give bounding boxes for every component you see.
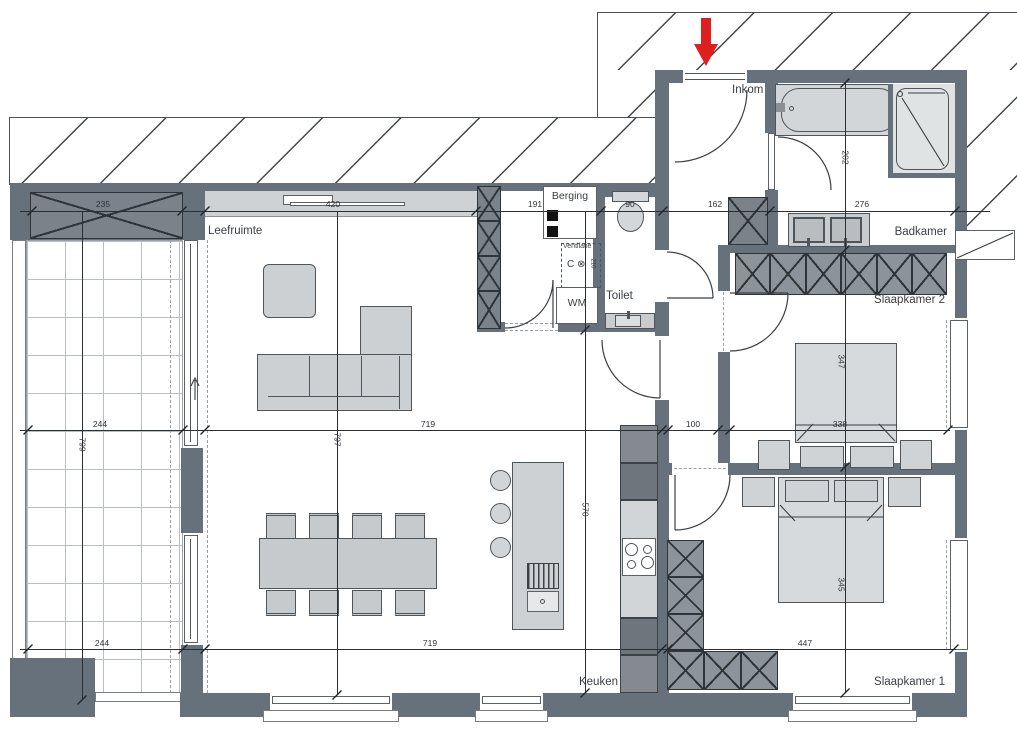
shower-tray	[896, 88, 949, 170]
wardrobe-cell	[735, 253, 770, 295]
dining-chair	[395, 513, 425, 539]
wardrobe-cell	[704, 651, 741, 690]
dining-chair	[266, 590, 296, 616]
dim-slaapkamer2-b: 338	[822, 419, 858, 430]
dining-chair	[352, 590, 382, 616]
bar-stool	[490, 503, 511, 524]
nightstand	[900, 440, 932, 470]
bathtub-inner	[781, 88, 897, 132]
hatch-outline	[10, 117, 660, 118]
dimension-line	[20, 649, 956, 650]
dimension-line	[337, 211, 338, 695]
wardrobe-cell	[912, 253, 947, 295]
window-sill	[788, 710, 917, 722]
dim-terras-onder: 244	[84, 638, 120, 649]
sofa-seat-line	[268, 396, 400, 397]
sliding-window-terrace-2	[184, 535, 198, 643]
bar-stool	[490, 537, 511, 558]
berging-door-threshold	[505, 330, 558, 331]
exterior-hatch-connector	[598, 70, 657, 118]
sofa-armrest-line	[399, 356, 400, 409]
berging-cabinet-cell	[477, 186, 501, 221]
slaapkamer1-door-arc	[675, 475, 730, 530]
sink-drain	[540, 599, 545, 604]
slaapkamer2-left-wall	[718, 253, 730, 475]
wardrobe-cell	[741, 651, 778, 690]
toilet-door-arc	[667, 252, 713, 298]
window-slaapkamer1-right	[950, 540, 968, 650]
dining-chair	[266, 513, 296, 539]
dim-badkamer-b: 276	[844, 199, 880, 210]
left-wall-segment-b	[181, 645, 203, 700]
toilet-door-opening	[655, 250, 669, 302]
cooktop-burner	[643, 545, 652, 554]
slaapkamer2-door-threshold	[723, 292, 724, 351]
slaapkamer1-door-opening	[672, 463, 728, 475]
room-label-slaapkamer1: Slaapkamer 1	[830, 676, 945, 689]
entrance-door-opening	[683, 70, 747, 83]
dim-leefruimte-top: 420	[315, 199, 351, 210]
nightstand	[742, 477, 775, 507]
left-wall-segment-a	[181, 448, 203, 533]
wardrobe-cell	[667, 577, 704, 614]
nightstand	[888, 477, 921, 507]
kitchen-cabinet	[620, 655, 658, 693]
cooktop-burner	[625, 543, 638, 556]
bathtub-drain	[789, 106, 794, 111]
room-label-keuken: Keuken	[548, 676, 618, 689]
dimension-line	[20, 430, 950, 431]
terrace-floor-tiles	[26, 240, 183, 693]
exterior-hatch-top-right	[598, 13, 1017, 70]
terrace-bottom-railing	[95, 692, 183, 702]
dining-table	[259, 538, 437, 589]
dining-chair	[352, 513, 382, 539]
window-sill	[475, 710, 548, 722]
bathtub-tap	[776, 103, 785, 112]
dim-terras-h: 799	[77, 433, 88, 457]
sofa-chaise	[360, 306, 412, 356]
sofa-divider	[361, 356, 362, 396]
room-label-berging: Berging	[543, 190, 597, 203]
wardrobe-cell	[806, 253, 841, 295]
slaapkamer2-door-opening	[718, 291, 730, 352]
electrical-panel-square	[547, 226, 558, 237]
exterior-hatch-top-band	[10, 118, 660, 185]
pillow	[834, 480, 878, 502]
window-center-line	[190, 244, 191, 442]
hatch-outline	[9, 117, 10, 185]
window-dashed-line	[946, 320, 947, 428]
ventilatie-symbol: C ⊗	[567, 258, 585, 271]
room-label-slaapkamer2: Slaapkamer 2	[830, 294, 945, 307]
neighbour-niche	[955, 230, 1015, 260]
window-center-line	[190, 539, 191, 639]
window-dashed-line	[946, 540, 947, 650]
pillow	[800, 446, 844, 468]
wardrobe-cell	[770, 253, 806, 295]
window-slaapkamer2-right	[950, 320, 968, 428]
entrance-threshold-line	[685, 79, 745, 80]
dim-badkamer-h: 202	[840, 146, 851, 170]
dim-slaapkamer2-h: 347	[836, 350, 847, 374]
dim-keuken-h: 570	[580, 498, 591, 522]
slaapkamer1-door-threshold	[674, 468, 726, 469]
inkom-structural-column	[728, 197, 768, 245]
wardrobe-cell	[841, 253, 877, 295]
wardrobe-cell	[667, 540, 704, 577]
dim-slaapkamer1-b: 447	[787, 638, 823, 649]
cooktop-burner	[627, 560, 636, 569]
berging-cabinet-cell	[477, 221, 501, 256]
sliding-window-terrace-1	[184, 240, 198, 446]
sofa-base	[257, 354, 412, 411]
berging-door-arc	[505, 280, 553, 328]
dim-leefruimte-h: 797	[332, 428, 343, 452]
hal-door-opening	[655, 336, 669, 400]
entrance-threshold-line	[685, 73, 745, 74]
sofa-divider	[309, 356, 310, 396]
hatch-outline	[597, 12, 598, 118]
window-leefruimte-bottom	[272, 696, 390, 704]
berging-cabinet-cell	[477, 291, 501, 329]
ventilatie-size: 210	[587, 252, 598, 276]
dining-chair	[309, 590, 339, 616]
hal-door-arc	[602, 340, 660, 398]
slaapkamer2-door-arc	[730, 293, 788, 351]
wardrobe-cell	[877, 253, 912, 295]
dimension-line	[845, 83, 846, 693]
pillow	[850, 446, 894, 468]
dimension-line	[585, 211, 586, 693]
coffee-table	[263, 264, 316, 318]
wardrobe-cell	[667, 614, 704, 651]
dim-slaapkamer1-h: 345	[836, 573, 847, 597]
berging-door-threshold	[505, 323, 558, 324]
window-sill	[263, 710, 399, 722]
toilet-tap	[627, 311, 630, 319]
overhang-dashed-line	[207, 240, 208, 693]
floor-plan: Ventilatie C ⊗ 210 WM	[0, 0, 1017, 735]
hatch-outline	[598, 12, 1017, 13]
nightstand	[758, 440, 790, 470]
dining-chair	[309, 513, 339, 539]
wardrobe-cell	[667, 651, 704, 690]
dim-terras-mid: 244	[82, 419, 118, 430]
dim-leefruimte-onder: 719	[412, 638, 448, 649]
dining-chair	[395, 590, 425, 616]
badkamer-door-arc	[778, 137, 831, 190]
kitchen-cabinet	[620, 463, 658, 500]
bar-stool	[490, 470, 511, 491]
berging-cabinet-cell	[477, 256, 501, 291]
window-slaapkamer1-bottom	[795, 696, 910, 704]
dim-hal: 100	[675, 419, 711, 430]
dim-toilet: 90	[612, 199, 648, 210]
room-label-leefruimte: Leefruimte	[208, 225, 262, 238]
overhang-dashed-line	[170, 240, 171, 693]
vanity-tap	[807, 238, 810, 246]
badkamer-door-leaf	[768, 133, 775, 190]
dim-leefruimte-mid: 719	[410, 419, 446, 430]
exterior-hatch-right-column	[967, 70, 1017, 230]
dim-inkom: 162	[697, 199, 733, 210]
pillow	[785, 480, 829, 502]
drainer-grill	[527, 563, 559, 589]
cooktop-burner	[641, 556, 654, 569]
room-label-toilet: Toilet	[606, 290, 633, 303]
terrace-left-railing	[12, 240, 26, 695]
room-label-inkom: Inkom	[732, 84, 763, 97]
window-keuken-bottom	[482, 696, 541, 704]
wm-label: WM	[556, 297, 598, 310]
room-label-badkamer: Badkamer	[840, 226, 947, 239]
entrance-door-arc	[675, 90, 747, 162]
dim-terras-top: 235	[85, 199, 121, 210]
